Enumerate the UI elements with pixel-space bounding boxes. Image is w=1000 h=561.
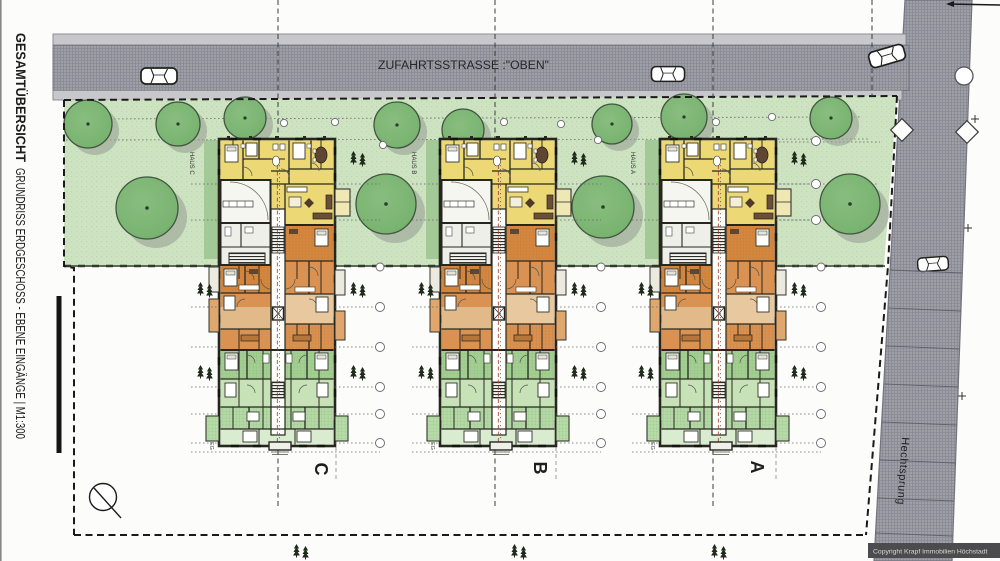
svg-text:ZUFAHRTSSTRASSE :"OBEN": ZUFAHRTSSTRASSE :"OBEN"	[378, 60, 549, 72]
svg-text:B: B	[530, 462, 550, 475]
svg-text:A: A	[747, 461, 767, 474]
svg-text:HAUS C: HAUS C	[188, 152, 194, 175]
svg-text:HAUS A: HAUS A	[629, 152, 635, 174]
svg-text:C: C	[311, 463, 331, 476]
svg-text:GRUNDRISS ERDGESCHOSS - EBENE: GRUNDRISS ERDGESCHOSS - EBENE EINGÄNGE |…	[13, 168, 28, 439]
svg-text:Copyright Krapf Immobilien Höc: Copyright Krapf Immobilien Höchstadt	[873, 549, 988, 556]
svg-text:HAUS B: HAUS B	[410, 152, 416, 174]
svg-text:GESAMTÜBERSICHT: GESAMTÜBERSICHT	[13, 33, 28, 163]
